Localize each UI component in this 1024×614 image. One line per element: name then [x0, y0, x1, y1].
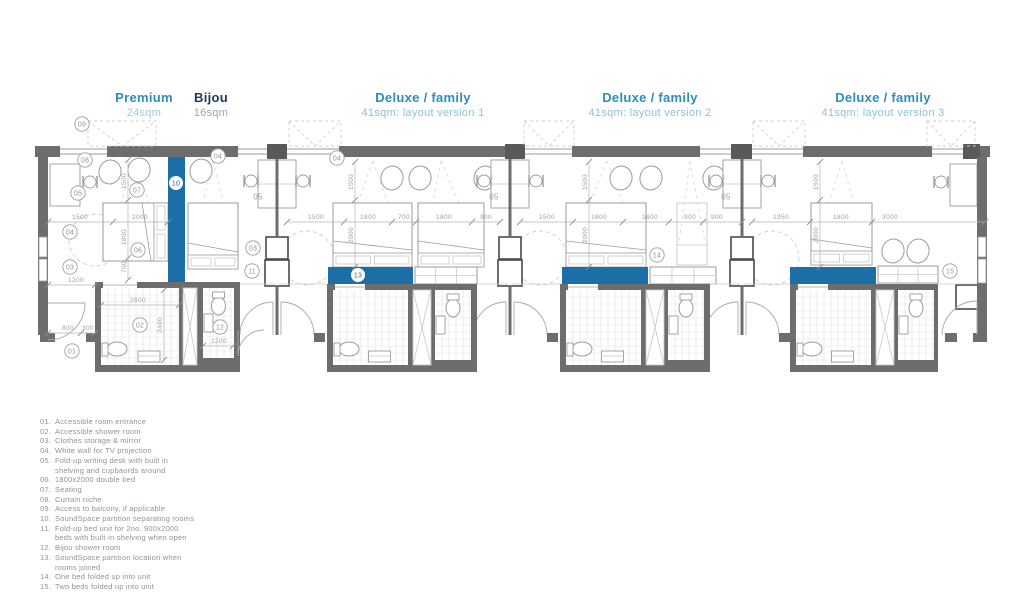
desk-chair [710, 175, 722, 187]
door-swing [281, 302, 314, 335]
exterior-wall [339, 146, 505, 157]
balcony-door-swing [753, 121, 805, 146]
exterior-wall [572, 146, 700, 157]
sink-unit [436, 316, 445, 334]
sink-unit [138, 351, 160, 362]
seating-chair [637, 164, 664, 193]
legend-item-number: 10. [33, 514, 55, 524]
dimension-label: 1600 [642, 214, 658, 221]
dimension-label: 900 [480, 214, 492, 221]
toilet-cistern [102, 343, 108, 356]
dimension-label: 1500 [308, 214, 324, 221]
item-marker-number: 05 [253, 193, 263, 202]
wall-stub [314, 333, 325, 342]
legend-item: 08.Curtain niche [33, 495, 194, 505]
door-swing [473, 302, 506, 335]
legend-item-number: 08. [33, 495, 55, 505]
dimension-label: 2000 [813, 227, 820, 243]
dimension-label: 1800 [591, 214, 607, 221]
folded-bed-outline [677, 203, 707, 265]
structural-column [963, 144, 980, 159]
legend-item-number: 14. [33, 572, 55, 582]
dimension-label: 2600 [130, 297, 146, 304]
toilet [679, 299, 693, 317]
exterior-wall [35, 146, 60, 157]
sink-unit [832, 351, 854, 362]
item-marker-number: 07 [133, 188, 141, 195]
legend-item: 03.Clothes storage & mirror [33, 436, 194, 446]
window-opening [932, 146, 963, 157]
legend-item: 09.Access to balcony, if applicable [33, 504, 194, 514]
sink-unit [369, 351, 391, 362]
dimension-label: 1500 [539, 214, 555, 221]
window-opening [39, 259, 47, 281]
item-marker-number: 09 [78, 122, 86, 129]
toilet [446, 299, 460, 317]
sink-unit [899, 316, 908, 334]
balcony-outline [753, 121, 805, 146]
item-marker-number: 05 [489, 193, 499, 202]
fold-up-desk [950, 164, 977, 206]
window-opening [978, 237, 986, 257]
item-marker-number: 04 [214, 154, 222, 161]
sink-unit [204, 314, 213, 332]
toilet [802, 342, 822, 356]
floorplan-page: Premium24sqmBijou16sqmDeluxe / family41s… [0, 0, 1024, 614]
fold-up-bed-cabinet [730, 260, 754, 286]
balcony-door-swing [289, 121, 341, 146]
wall-stub [973, 333, 987, 342]
seating-chair [96, 158, 123, 187]
window-opening [525, 146, 572, 157]
projection-line [690, 161, 705, 243]
legend-item-text: White wall for TV projection [55, 446, 152, 456]
dimension-label: 800 [62, 325, 74, 332]
legend-item: 12.Bijou shower room [33, 543, 194, 553]
bed-headboard [418, 253, 484, 267]
balcony-outline [289, 121, 341, 146]
dimension-label: 3000 [882, 214, 898, 221]
door-swing [514, 302, 547, 335]
legend-item: 10.SoundSpace partition separating rooms [33, 514, 194, 524]
sink-unit [669, 316, 678, 334]
wall-stub [779, 333, 790, 342]
legend-item-number: 04. [33, 446, 55, 456]
legend-item-text: Bijou shower room [55, 543, 121, 553]
dimension-label: 2000 [582, 227, 589, 243]
toilet [212, 297, 226, 315]
dimension-label: 1950 [773, 214, 789, 221]
legend-item: 05.Fold-up writing desk with built in sh… [33, 456, 194, 475]
balcony-door-swing [524, 121, 574, 146]
dimension-label: 1500 [121, 173, 128, 189]
toilet-cistern [567, 343, 573, 356]
window-opening [752, 146, 803, 157]
desk-chair [245, 175, 257, 187]
dimension-label: 1500 [348, 174, 355, 190]
item-marker-number: 08 [81, 158, 89, 165]
legend-item: 11.Fold-up bed unit for 2no. 900x2000 be… [33, 524, 194, 543]
dimension-label: 1200 [68, 277, 84, 284]
dimension-label: 900 [711, 214, 723, 221]
dimension-label: 900 [684, 214, 696, 221]
toilet [339, 342, 359, 356]
door-swing [238, 330, 264, 356]
seating-chair [879, 237, 906, 266]
legend-item: 07.Seating [33, 485, 194, 495]
soundspace-partition [168, 152, 185, 282]
item-marker-number: 04 [333, 156, 341, 163]
item-marker-number: 15 [946, 269, 954, 276]
balcony-outline [524, 121, 574, 146]
legend-item-text: Curtain niche [55, 495, 102, 505]
legend-item: 15.Two beds folded up into unit [33, 582, 194, 592]
balcony-door-swing [88, 121, 156, 146]
desk-chair [762, 175, 774, 187]
legend-item-text: Fold-up bed unit for 2no. 900x2000 beds … [55, 524, 187, 543]
dimension-label: 700 [398, 214, 410, 221]
fold-up-bed-cabinet [498, 260, 522, 286]
seating-chair [187, 157, 214, 186]
desk-chair [935, 176, 947, 188]
item-marker-number: 02 [136, 323, 144, 330]
balcony-door-swing [927, 121, 975, 146]
door-swing [240, 302, 273, 335]
dimension-label: 2400 [157, 317, 164, 333]
item-marker-number: 13 [354, 273, 362, 280]
desk-chair [478, 175, 490, 187]
bed-headboard [566, 253, 646, 267]
structural-column [505, 144, 525, 159]
seating-chair [125, 156, 152, 185]
desk-chair [530, 175, 542, 187]
legend-item-number: 13. [33, 553, 55, 563]
legend-item: 02.Accessible shower room [33, 427, 194, 437]
balcony-outline [927, 121, 975, 146]
legend-item-text: One bed folded up into unit [55, 572, 150, 582]
legend-item-text: SoundSpace partition separating rooms [55, 514, 194, 524]
desk-chair [84, 176, 96, 188]
item-marker-number: 05 [74, 191, 82, 198]
legend-item-text: Accessible shower room [55, 427, 141, 437]
legend-item-number: 11. [33, 524, 55, 534]
legend-item-text: Access to balcony, if applicable [55, 504, 165, 514]
toilet-cistern [797, 343, 803, 356]
window-opening [978, 259, 986, 283]
soundspace-partition [562, 267, 648, 284]
wall-stub [40, 333, 55, 342]
window-opening [700, 146, 731, 157]
legend-item-number: 07. [33, 485, 55, 495]
dimension-label: 1500 [813, 174, 820, 190]
legend: 01.Accessible room entrance02.Accessible… [33, 417, 194, 592]
bed-headboard [154, 203, 168, 261]
item-marker-number: 06 [134, 248, 142, 255]
structural-column [267, 144, 287, 159]
clothes-storage [499, 237, 521, 259]
item-marker-number: 03 [249, 246, 257, 253]
toilet-cistern [680, 294, 692, 300]
legend-item-number: 05. [33, 456, 55, 466]
seating-chair [406, 164, 433, 193]
legend-item-number: 15. [33, 582, 55, 592]
item-marker-number: 14 [653, 253, 661, 260]
item-marker-number: 10 [172, 181, 180, 188]
legend-item-number: 06. [33, 475, 55, 485]
legend-item-number: 02. [33, 427, 55, 437]
item-marker-number: 04 [66, 230, 74, 237]
legend-item: 14.One bed folded up into unit [33, 572, 194, 582]
toilet-cistern [334, 343, 340, 356]
seating-chair [607, 164, 634, 193]
dimension-label: 1800 [121, 229, 128, 245]
projection-line [679, 161, 690, 243]
item-marker-number: 03 [66, 265, 74, 272]
dimension-label: 1800 [360, 214, 376, 221]
window-opening [238, 146, 267, 157]
window-opening [39, 237, 47, 257]
legend-item: 04.White wall for TV projection [33, 446, 194, 456]
legend-item: 01.Accessible room entrance [33, 417, 194, 427]
dimension-label: 1200 [211, 338, 227, 345]
legend-item-text: 1800x2000 double bed [55, 475, 135, 485]
balcony-outline [88, 121, 156, 146]
wall-stub [945, 333, 957, 342]
seating-chair [904, 237, 931, 266]
legend-item-text: Two beds folded up into unit [55, 582, 154, 592]
toilet [107, 342, 127, 356]
legend-item-text: Fold-up writing desk with built in shelv… [55, 456, 168, 475]
door-swing [746, 302, 779, 335]
exterior-wall [980, 146, 990, 157]
bed-headboard [188, 255, 238, 269]
dimension-label: 2000 [348, 227, 355, 243]
clothes-storage [731, 237, 753, 259]
toilet [909, 299, 923, 317]
soundspace-partition [328, 267, 413, 284]
legend-item-number: 01. [33, 417, 55, 427]
item-marker-number: 12 [216, 325, 224, 332]
item-marker-number: 05 [721, 193, 731, 202]
bed-headboard [333, 253, 412, 267]
dimension-label: 1800 [833, 214, 849, 221]
dimension-label: 1500 [582, 174, 589, 190]
sink-unit [602, 351, 624, 362]
toilet-cistern [447, 294, 459, 300]
legend-item: 06.1800x2000 double bed [33, 475, 194, 485]
toilet [572, 342, 592, 356]
legend-item-number: 12. [33, 543, 55, 553]
legend-item-number: 09. [33, 504, 55, 514]
item-marker-number: 01 [68, 349, 76, 356]
soundspace-partition [790, 267, 876, 284]
dimension-label: 700 [121, 261, 128, 273]
wall-stub [547, 333, 558, 342]
clothes-storage [266, 237, 288, 259]
legend-item-text: Clothes storage & mirror [55, 436, 141, 446]
legend-item-text: Accessible room entrance [55, 417, 146, 427]
legend-item-number: 03. [33, 436, 55, 446]
toilet-cistern [213, 292, 225, 298]
dimension-label: 2000 [132, 214, 148, 221]
toilet-cistern [910, 294, 922, 300]
legend-item: 13.SoundSpace partition location when ro… [33, 553, 194, 572]
legend-item-text: Seating [55, 485, 82, 495]
item-marker-number: 11 [248, 269, 256, 276]
dimension-label: 1500 [72, 214, 88, 221]
dimension-label: 1800 [436, 214, 452, 221]
structural-column [731, 144, 752, 159]
desk-chair [297, 175, 309, 187]
fold-up-bed-cabinet [265, 260, 289, 286]
dimension-label: 300 [82, 325, 94, 332]
exterior-wall [803, 146, 932, 157]
legend-item-text: SoundSpace partition location when rooms… [55, 553, 181, 572]
